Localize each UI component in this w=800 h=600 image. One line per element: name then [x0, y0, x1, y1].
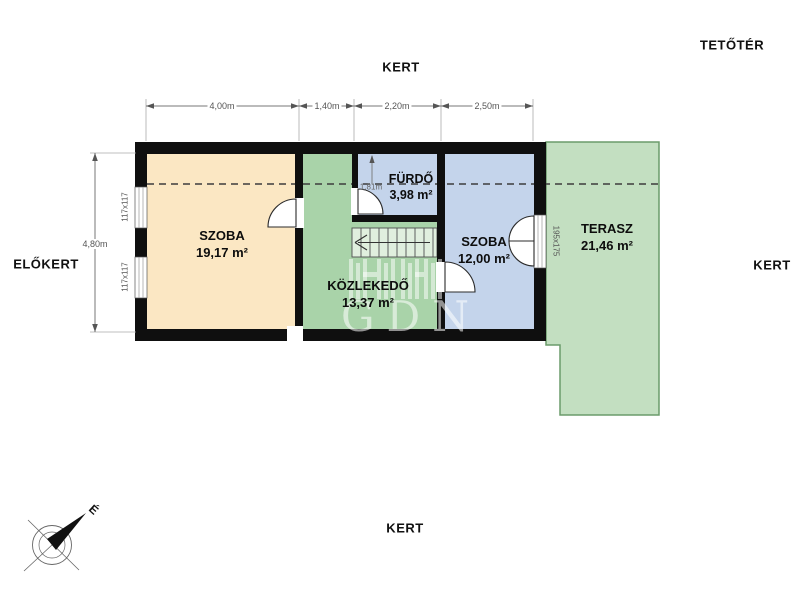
window-label-2: 117x117	[121, 262, 130, 292]
room-label-furdo: FÜRDŐ 3,98 m²	[389, 171, 433, 203]
dim-top-4: 2,50m	[472, 101, 501, 111]
wall-left	[135, 142, 147, 341]
window-label-1: 117x117	[121, 192, 130, 222]
staircase	[352, 228, 437, 257]
wall-top	[135, 142, 546, 154]
room-area: 21,46 m²	[581, 237, 633, 254]
room-name: TERASZ	[581, 220, 633, 237]
wall-notch	[287, 326, 303, 341]
room-area: 13,37 m²	[327, 294, 409, 311]
compass-rose: É	[24, 501, 102, 571]
dim-bath: 1,81m	[360, 183, 382, 192]
wall-furdo-bottom	[352, 215, 445, 222]
room-area: 3,98 m²	[389, 187, 433, 203]
north-arrow	[47, 513, 86, 550]
label-kert-top: KERT	[382, 60, 419, 75]
window-left-2	[135, 257, 147, 298]
dim-top-2: 1,40m	[312, 101, 341, 111]
dim-top-1: 4,00m	[207, 101, 236, 111]
room-label-szoba-small: SZOBA 12,00 m²	[458, 233, 510, 267]
room-name: FÜRDŐ	[389, 171, 433, 187]
north-label: É	[86, 501, 102, 518]
terrace-door-label: 195x175	[552, 226, 561, 257]
floor-plan: GDN É KERT TETŐTÉR ELŐKERT KERT KERT SZO…	[0, 0, 800, 600]
room-area: 12,00 m²	[458, 250, 510, 267]
label-kert-right: KERT	[753, 258, 790, 273]
room-name: KÖZLEKEDŐ	[327, 277, 409, 294]
room-label-terasz: TERASZ 21,46 m²	[581, 220, 633, 254]
room-label-szoba-large: SZOBA 19,17 m²	[196, 227, 248, 261]
dim-left-height: 4,80m	[80, 239, 109, 249]
room-name: SZOBA	[196, 227, 248, 244]
terrace-french-door	[534, 215, 546, 268]
room-area: 19,17 m²	[196, 244, 248, 261]
label-tetoter: TETŐTÉR	[700, 38, 764, 53]
label-elokert: ELŐKERT	[13, 257, 79, 272]
wall-szoba-kozlekedo	[295, 154, 303, 329]
window-left-1	[135, 187, 147, 228]
dim-top-3: 2,20m	[382, 101, 411, 111]
room-label-kozlekedo: KÖZLEKEDŐ 13,37 m²	[327, 277, 409, 311]
room-name: SZOBA	[458, 233, 510, 250]
label-kert-bottom: KERT	[386, 521, 423, 536]
terrace-area	[546, 142, 659, 415]
